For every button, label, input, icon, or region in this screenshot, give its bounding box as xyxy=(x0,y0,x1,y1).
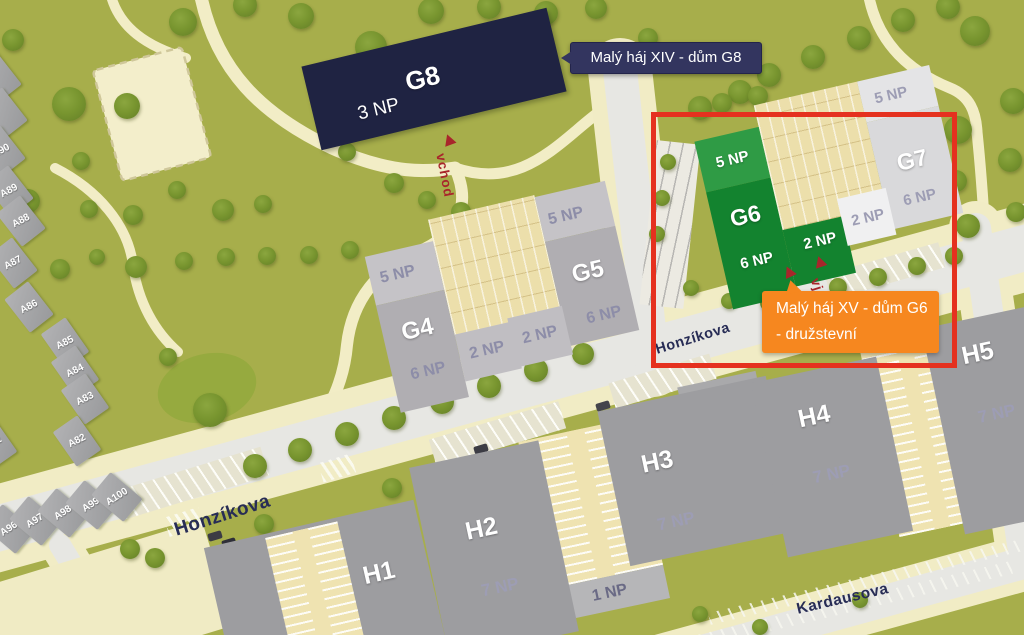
tree xyxy=(338,143,356,161)
tree xyxy=(212,199,234,221)
tree xyxy=(418,191,436,209)
tooltip-g6-pointer-icon xyxy=(783,278,802,294)
tree xyxy=(258,247,276,265)
tree xyxy=(217,248,235,266)
tree xyxy=(168,181,186,199)
tree xyxy=(159,348,177,366)
house-label: A83 xyxy=(74,390,95,408)
h4-floors: 7 NP xyxy=(811,461,852,488)
h5-floors: 7 NP xyxy=(976,400,1017,427)
tree xyxy=(692,606,708,622)
tree xyxy=(998,148,1022,172)
building-h4-label: H4 xyxy=(796,399,833,434)
building-g8-floors: 3 NP xyxy=(356,94,402,125)
tree xyxy=(288,3,314,29)
h3-floors: 7 NP xyxy=(655,508,696,535)
tree xyxy=(89,249,105,265)
tree xyxy=(288,438,312,462)
tree xyxy=(254,195,272,213)
tree xyxy=(120,539,140,559)
house-label: A72 xyxy=(0,434,4,452)
building-g8-label: G8 xyxy=(402,60,443,98)
house-label: A88 xyxy=(10,212,31,230)
tree xyxy=(193,393,227,427)
tree xyxy=(175,252,193,270)
house-label: A90 xyxy=(0,142,12,160)
tree xyxy=(382,478,402,498)
house-label: A82 xyxy=(66,432,87,450)
tree xyxy=(1006,202,1024,222)
tree xyxy=(891,8,915,32)
h2-floors: 7 NP xyxy=(479,574,520,601)
h1-garage-roof xyxy=(265,521,370,635)
tooltip-g6-text-line2: - družstevní xyxy=(776,322,939,348)
playground xyxy=(93,47,211,181)
site-map: G8 3 NP vchod 5 NP G4 6 NP 2 NP 5 NP G5 … xyxy=(0,0,1024,635)
tree xyxy=(2,29,24,51)
tooltip-g8[interactable]: Malý háj XIV - dům G8 xyxy=(570,42,762,74)
tree xyxy=(52,87,86,121)
tooltip-g6[interactable]: Malý háj XV - dům G6 - družstevní xyxy=(762,291,939,353)
tree xyxy=(243,454,267,478)
house-label: A86 xyxy=(18,298,39,316)
tree xyxy=(80,200,98,218)
tree xyxy=(125,256,147,278)
tooltip-g8-pointer-icon xyxy=(561,51,572,65)
building-h2-label: H2 xyxy=(463,512,500,547)
tooltip-g6-text-line1: Malý háj XV - dům G6 xyxy=(776,296,939,322)
tree xyxy=(300,246,318,264)
tree xyxy=(801,45,825,69)
tree xyxy=(114,93,140,119)
tree xyxy=(847,26,871,50)
tree xyxy=(145,548,165,568)
tree xyxy=(960,16,990,46)
house-label: A87 xyxy=(2,254,23,272)
tree xyxy=(384,173,404,193)
tree xyxy=(50,259,70,279)
tooltip-g8-text: Malý háj XIV - dům G8 xyxy=(591,49,742,66)
tree xyxy=(335,422,359,446)
house-label: A100 xyxy=(104,486,130,508)
tree xyxy=(72,152,90,170)
tree xyxy=(254,514,274,534)
building-h3-label: H3 xyxy=(639,445,676,480)
building-h1-label: H1 xyxy=(360,556,398,591)
tree xyxy=(169,8,197,36)
tree xyxy=(123,205,143,225)
tree xyxy=(1000,88,1024,114)
building-h5-label: H5 xyxy=(959,336,996,371)
tree xyxy=(752,619,768,635)
